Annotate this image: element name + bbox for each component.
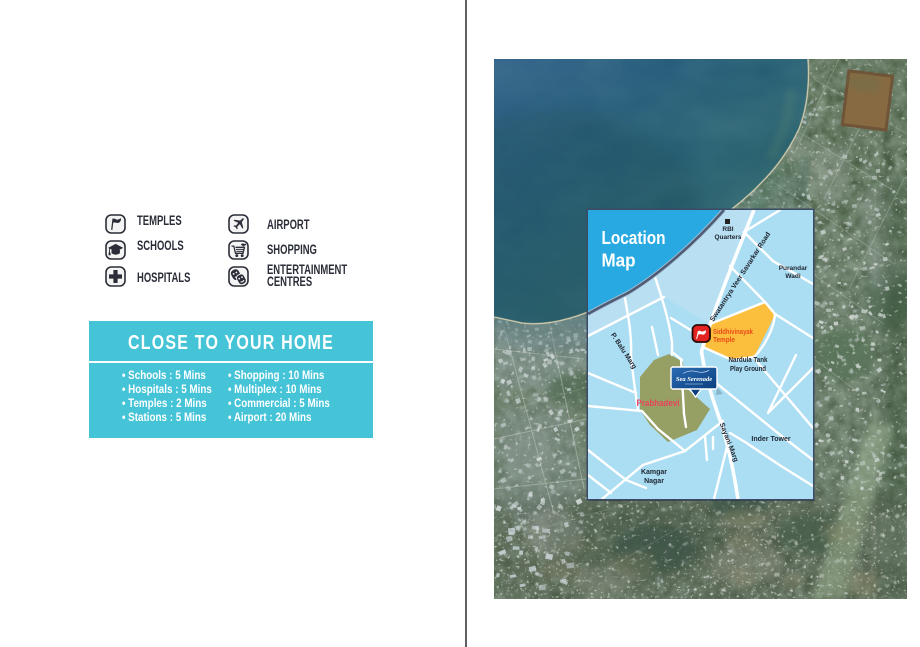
svg-text:Nagar: Nagar [644,478,664,485]
svg-text:Kamgar: Kamgar [641,469,667,476]
svg-text:Wadi: Wadi [785,273,800,280]
svg-text:Temple: Temple [713,337,735,344]
svg-text:Nardula Tank: Nardula Tank [729,357,768,364]
svg-text:Sea Serenade: Sea Serenade [676,376,712,383]
svg-text:Location: Location [602,228,666,248]
svg-text:Inder Tower: Inder Tower [751,436,790,443]
svg-text:Prabhadevi: Prabhadevi [637,398,680,409]
svg-text:Siddhivinayak: Siddhivinayak [713,329,753,336]
svg-text:Play Ground: Play Ground [730,366,766,373]
svg-text:Quarters: Quarters [714,234,741,241]
svg-text:Map: Map [602,251,636,271]
svg-text:RBI: RBI [722,226,733,233]
svg-text:Purandar: Purandar [779,265,808,272]
